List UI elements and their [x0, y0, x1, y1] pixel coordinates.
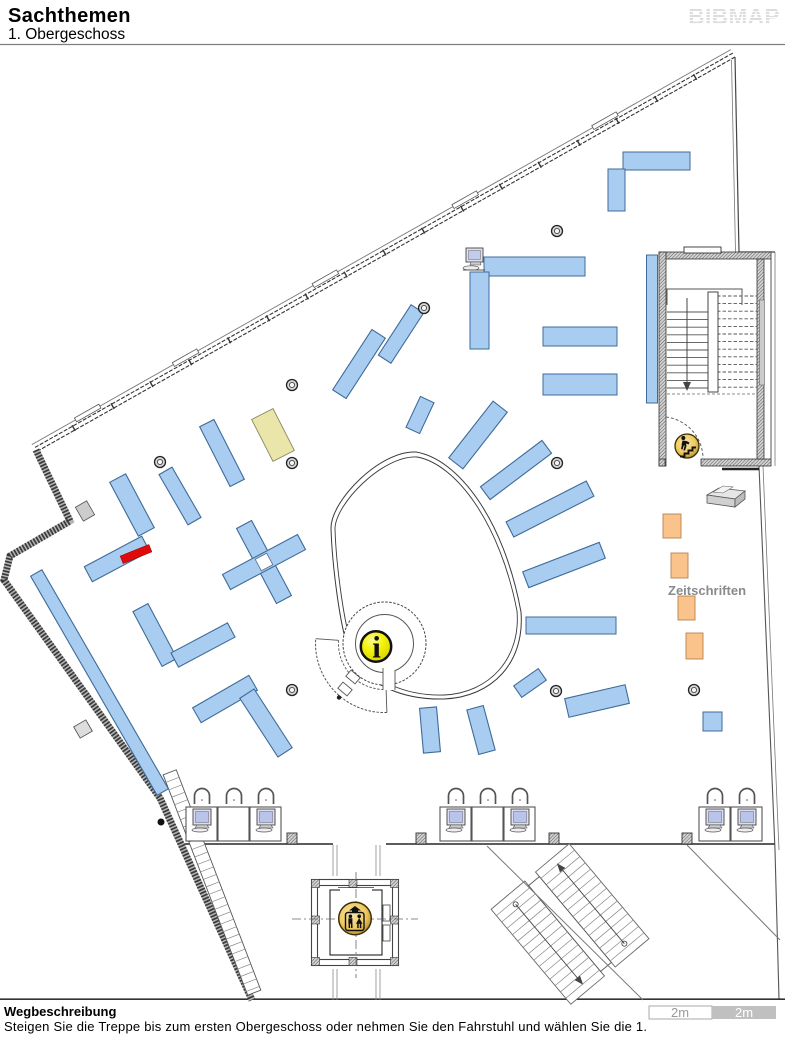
- svg-text:Steigen Sie die Treppe bis zum: Steigen Sie die Treppe bis zum ersten Ob…: [4, 1019, 647, 1034]
- svg-text:BIBMAP: BIBMAP: [688, 4, 780, 29]
- svg-text:Zeitschriften: Zeitschriften: [668, 583, 746, 598]
- svg-text:Wegbeschreibung: Wegbeschreibung: [4, 1004, 117, 1019]
- svg-text:2m: 2m: [735, 1005, 753, 1020]
- svg-text:1. Obergeschoss: 1. Obergeschoss: [8, 26, 125, 43]
- svg-text:Sachthemen: Sachthemen: [8, 5, 131, 27]
- svg-text:i: i: [372, 630, 381, 665]
- svg-text:2m: 2m: [671, 1005, 689, 1020]
